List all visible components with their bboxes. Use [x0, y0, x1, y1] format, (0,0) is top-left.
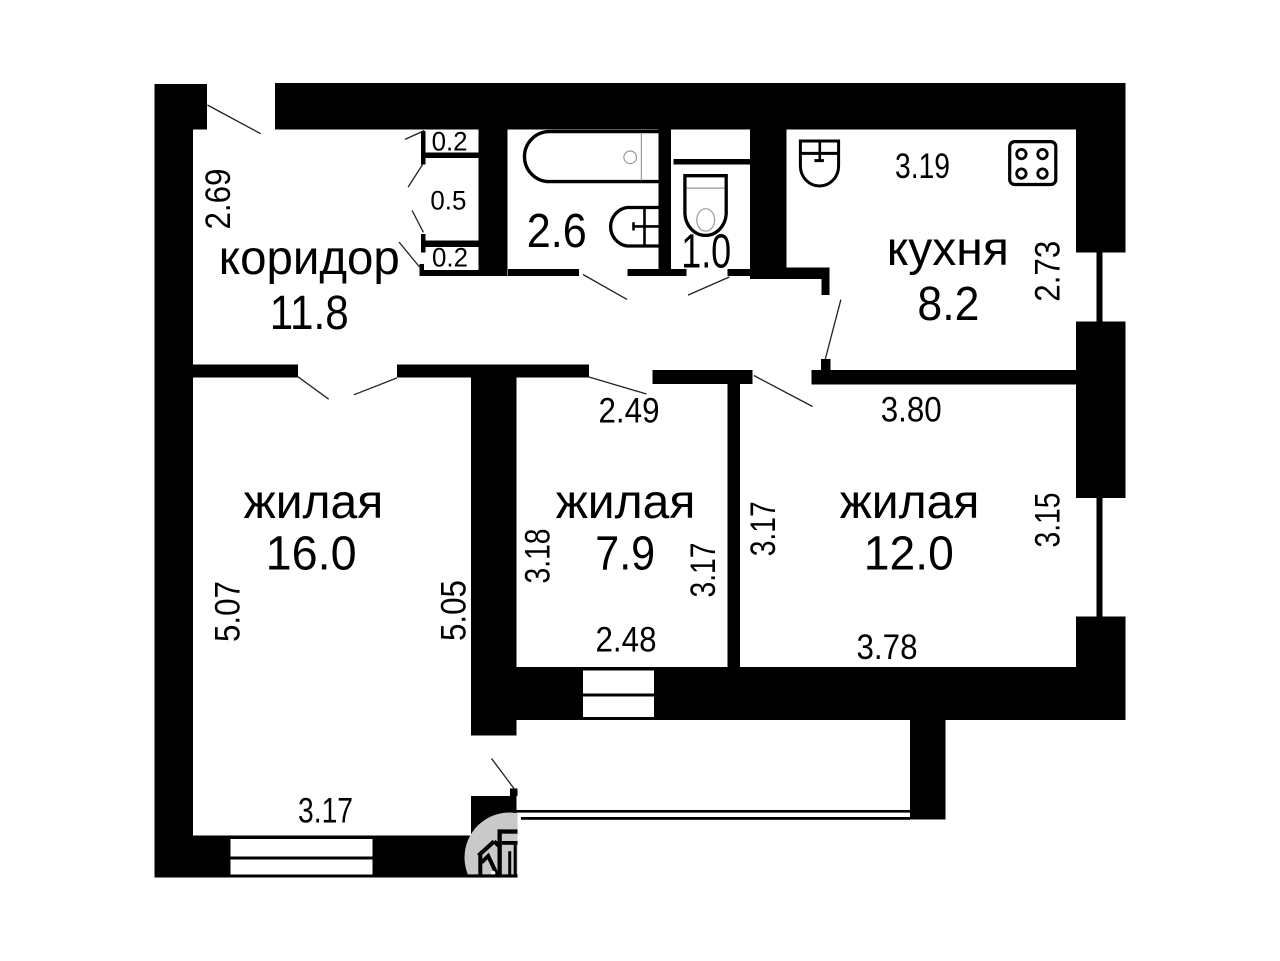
svg-text:3.17: 3.17 — [684, 543, 723, 598]
svg-text:12.0: 12.0 — [864, 527, 954, 580]
svg-text:3.17: 3.17 — [298, 791, 353, 830]
svg-text:2.48: 2.48 — [596, 621, 657, 660]
svg-text:3.78: 3.78 — [857, 628, 918, 667]
svg-text:2.6: 2.6 — [527, 205, 587, 258]
svg-text:8.2: 8.2 — [917, 278, 979, 331]
svg-text:7.9: 7.9 — [595, 527, 655, 580]
svg-text:2.69: 2.69 — [199, 169, 238, 230]
svg-text:1.0: 1.0 — [681, 226, 731, 279]
svg-text:0.2: 0.2 — [432, 127, 468, 157]
svg-text:кухня: кухня — [887, 223, 1009, 276]
svg-text:жилая: жилая — [244, 476, 384, 529]
svg-text:2.49: 2.49 — [599, 392, 660, 431]
svg-text:3.18: 3.18 — [519, 529, 558, 584]
svg-text:3.17: 3.17 — [744, 501, 783, 556]
svg-text:0.2: 0.2 — [432, 243, 468, 273]
svg-text:2.73: 2.73 — [1029, 241, 1068, 302]
svg-text:0.5: 0.5 — [430, 186, 466, 216]
svg-text:жилая: жилая — [840, 476, 980, 529]
svg-text:3.19: 3.19 — [895, 147, 950, 186]
svg-text:коридор: коридор — [219, 232, 400, 285]
svg-text:жилая: жилая — [556, 476, 696, 529]
svg-text:3.80: 3.80 — [881, 391, 942, 430]
svg-text:5.07: 5.07 — [208, 581, 247, 642]
svg-text:11.8: 11.8 — [270, 287, 349, 340]
svg-text:5.05: 5.05 — [434, 580, 473, 641]
svg-text:3.15: 3.15 — [1028, 493, 1067, 548]
svg-text:16.0: 16.0 — [266, 527, 357, 580]
